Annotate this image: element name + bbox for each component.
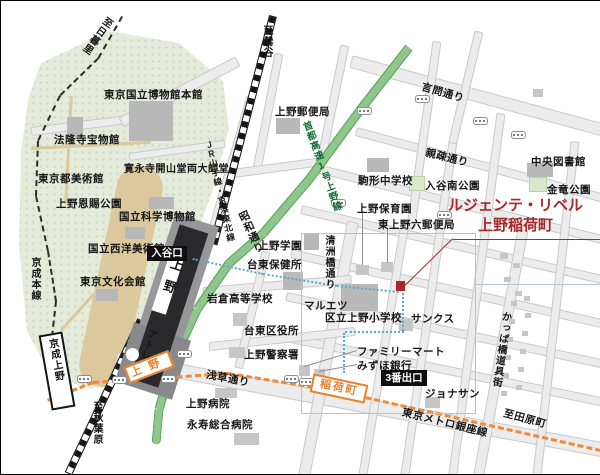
building-block [518, 367, 524, 372]
label-iwakura-hs: 岩倉高等学校 [207, 291, 273, 306]
label-komagata-jhs: 駒形中学校 [358, 173, 413, 188]
building-block [129, 101, 173, 141]
label-kinryu-park: 金竜公園 [547, 182, 591, 197]
label-to-uguisudani: 至鶯谷 [259, 25, 274, 58]
building-block [520, 349, 526, 354]
label-bunka-kaikan: 東京文化会館 [80, 274, 146, 289]
label-tokyo-national-museum: 東京国立博物館本館 [104, 87, 203, 102]
label-tokyo-metropolitan-art-museum: 東京都美術館 [38, 171, 104, 186]
property-leader-line [453, 239, 600, 240]
label-sunkus: サンクス [411, 311, 455, 326]
building-block [511, 301, 517, 306]
label-eiju-hospital: 永寿総合病院 [187, 417, 253, 432]
signal-marker [112, 376, 127, 384]
walking-route [345, 331, 404, 333]
building-block [525, 313, 531, 318]
signal-marker [77, 375, 92, 383]
label-science-museum: 国立科学博物館 [119, 209, 196, 224]
building-block [516, 385, 522, 390]
building-block [367, 158, 389, 172]
signal-marker [473, 117, 488, 125]
property-marker [396, 281, 405, 291]
signal-marker [161, 375, 176, 383]
building-block [500, 253, 508, 259]
leader-line [387, 228, 388, 263]
property-name-line1: ルジェンテ・リベル [433, 196, 598, 216]
label-jonathan: ジョナサン [425, 386, 480, 401]
area-map: 上野 アトレ 入谷口 3番出口 上野 稲荷町 京成上野 [0, 0, 600, 475]
building-block [96, 289, 118, 301]
building-block [234, 433, 259, 445]
label-central-library: 中央図書館 [531, 154, 586, 169]
badge-exit3: 3番出口 [381, 370, 427, 386]
property-name: ルジェンテ・リベル 上野稲荷町 [433, 196, 598, 235]
label-ueno-park: 上野恩賜公園 [56, 196, 122, 211]
expressway-segment-end [151, 409, 163, 445]
label-to-akihabara: 至秋葉原 [89, 401, 104, 445]
building-block [276, 118, 300, 134]
leader-line [362, 213, 363, 265]
label-ueno-hospital: 上野病院 [186, 396, 230, 411]
building-block [229, 347, 245, 358]
building-block [533, 89, 543, 97]
label-keisei-main-line: 京成本線 [27, 257, 42, 301]
label-taito-city-office: 台東区役所 [244, 323, 299, 338]
label-kiyosubashi-dori: 清洲橋通り [321, 235, 336, 290]
walking-route [402, 293, 404, 331]
label-ueno-post-office: 上野郵便局 [275, 104, 330, 119]
property-name-line2: 上野稲荷町 [433, 216, 598, 236]
badge-iriya-exit: 入谷口 [147, 246, 187, 261]
label-taito-health-center: 台東保健所 [247, 257, 302, 272]
building-block [513, 263, 520, 268]
label-ueno-elementary: 区立上野小学校 [325, 310, 402, 325]
building-block [501, 391, 507, 396]
building-block [125, 227, 145, 239]
building-block [515, 291, 522, 296]
signal-marker [284, 375, 299, 383]
building-block [149, 197, 174, 209]
building-block [524, 296, 530, 301]
kinryu-park-area [529, 177, 547, 192]
signal-marker [357, 107, 372, 115]
label-iriya-minami-park: 入谷南公園 [425, 178, 480, 193]
label-ueno-nursery: 上野保育園 [357, 201, 412, 216]
label-ueno-police: 上野警察署 [244, 347, 299, 362]
keisei-ueno-label: 京成上野 [44, 337, 66, 383]
building-block [504, 277, 511, 282]
highlight-line [474, 284, 600, 285]
building-block [522, 331, 528, 336]
label-kappabashi-street: かっぱ橋道具街 [488, 310, 514, 388]
signal-marker [511, 131, 526, 139]
label-horyuji-gallery: 法隆寺宝物館 [54, 132, 120, 147]
label-familymart: ファミリーマート [357, 344, 445, 359]
signal-marker [177, 350, 192, 358]
